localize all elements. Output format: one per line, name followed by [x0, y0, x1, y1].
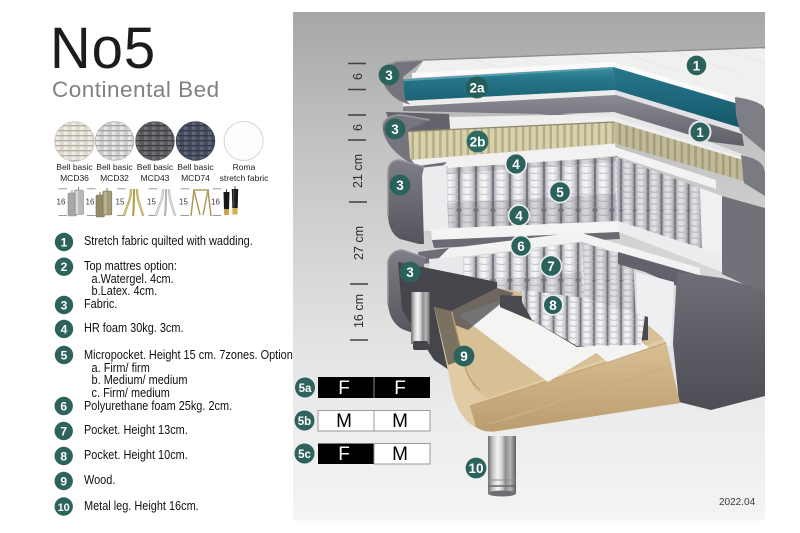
svg-text:4: 4 [515, 209, 523, 224]
svg-text:6: 6 [60, 399, 67, 413]
svg-text:5b: 5b [298, 416, 311, 428]
svg-text:10: 10 [468, 461, 483, 476]
svg-text:F: F [338, 444, 350, 465]
svg-text:3: 3 [391, 122, 399, 137]
svg-text:1: 1 [693, 58, 701, 73]
svg-text:M: M [336, 411, 352, 432]
svg-text:15: 15 [116, 198, 125, 207]
svg-text:27 cm: 27 cm [352, 226, 366, 260]
svg-text:15: 15 [147, 198, 156, 207]
svg-text:2: 2 [61, 260, 68, 274]
svg-text:16: 16 [211, 198, 220, 207]
svg-text:16: 16 [57, 198, 66, 207]
svg-text:8: 8 [549, 298, 557, 313]
svg-text:7: 7 [547, 259, 555, 274]
svg-text:F: F [394, 378, 406, 399]
svg-text:2b: 2b [470, 135, 486, 150]
svg-text:21 cm: 21 cm [351, 154, 365, 188]
svg-text:3: 3 [61, 298, 68, 312]
svg-text:3: 3 [396, 178, 404, 193]
svg-text:3: 3 [385, 68, 393, 83]
svg-text:4: 4 [512, 157, 520, 172]
svg-text:3: 3 [406, 265, 414, 280]
svg-text:6: 6 [517, 239, 525, 254]
svg-text:1: 1 [696, 125, 704, 140]
svg-text:7: 7 [60, 424, 67, 438]
svg-text:5c: 5c [298, 449, 311, 461]
svg-text:9: 9 [60, 474, 67, 488]
svg-text:M: M [392, 444, 408, 465]
svg-text:16: 16 [86, 198, 95, 207]
svg-text:8: 8 [60, 449, 67, 463]
svg-text:4: 4 [61, 322, 68, 336]
svg-text:16 cm: 16 cm [352, 294, 366, 328]
svg-text:5: 5 [61, 348, 68, 362]
svg-text:5a: 5a [299, 383, 312, 395]
svg-text:5: 5 [556, 185, 564, 200]
svg-text:9: 9 [460, 349, 468, 364]
svg-text:1: 1 [61, 235, 68, 249]
svg-text:6: 6 [351, 124, 365, 131]
svg-text:15: 15 [179, 198, 188, 207]
svg-text:F: F [338, 378, 350, 399]
svg-text:M: M [392, 411, 408, 432]
svg-text:10: 10 [58, 502, 70, 514]
svg-text:2a: 2a [469, 81, 485, 96]
svg-text:6: 6 [351, 73, 365, 80]
